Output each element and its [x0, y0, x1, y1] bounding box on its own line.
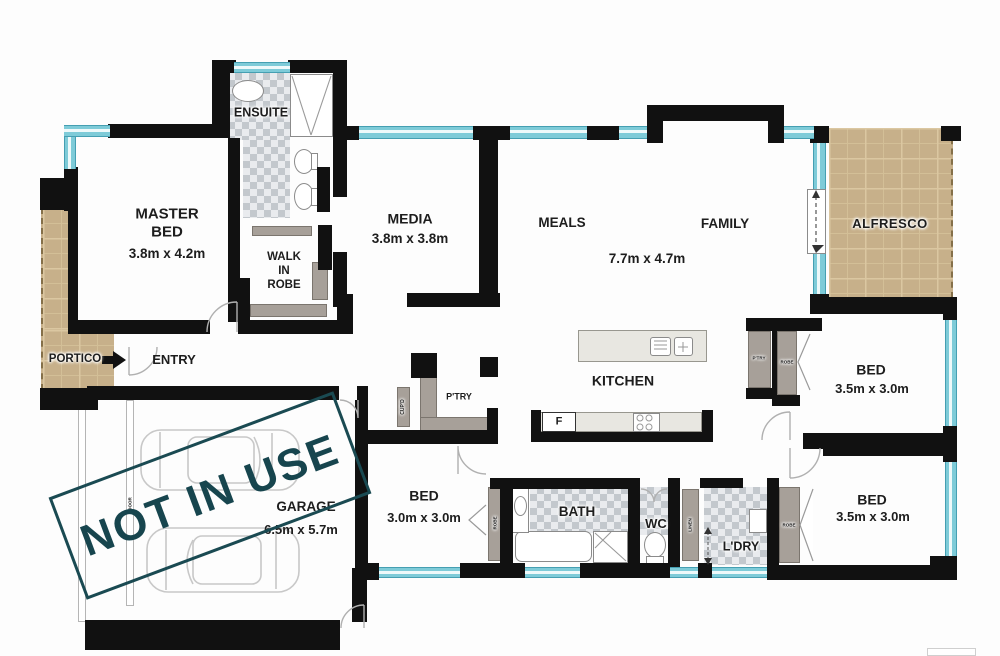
wall-segment — [333, 140, 347, 197]
master-bed-label: MASTER BED — [135, 206, 198, 243]
path — [790, 448, 820, 478]
wall-segment — [767, 565, 955, 580]
wall-segment — [357, 386, 368, 400]
window — [945, 320, 957, 426]
alfresco-label: ALFRESCO — [852, 216, 928, 232]
bathtub — [515, 531, 592, 562]
wall-segment — [700, 478, 743, 488]
bed2-label: BED — [856, 361, 886, 378]
wall-segment — [587, 126, 619, 140]
wall-segment — [367, 563, 379, 580]
portico-paving — [41, 208, 70, 334]
wall-segment — [473, 126, 510, 140]
bath-sink — [514, 496, 527, 516]
wir-shelf — [252, 226, 312, 236]
path — [469, 505, 486, 535]
wall-segment — [212, 60, 236, 73]
media-dims: 3.8m x 3.8m — [372, 231, 449, 247]
path — [762, 412, 790, 440]
path — [458, 446, 486, 474]
bath-shower — [593, 531, 628, 563]
window — [64, 137, 76, 169]
wall-segment — [810, 297, 957, 314]
family-label: FAMILY — [701, 216, 749, 232]
ensuite-shower — [290, 74, 333, 137]
floor-plan: ENSUITE MASTER BED 3.8m x 4.2m WALK IN R… — [0, 0, 1000, 656]
wall-segment — [647, 105, 784, 121]
window — [525, 567, 580, 578]
island-sink — [650, 337, 671, 356]
wall-segment — [238, 320, 337, 334]
wall-segment — [368, 430, 498, 444]
bed3-label: BED — [409, 487, 439, 504]
pantry-label: P'TRY — [446, 392, 472, 403]
window — [64, 125, 110, 137]
wall-segment — [317, 167, 330, 212]
ensuite-sink — [232, 80, 264, 102]
wall-segment — [746, 318, 822, 331]
wall-segment — [333, 126, 359, 140]
window — [359, 126, 473, 139]
cupboard-label: CUP'D — [400, 399, 406, 414]
laundry-label: L'DRY — [723, 539, 760, 554]
window — [813, 143, 826, 189]
portico-label: PORTICO — [49, 352, 101, 366]
ensuite-label: ENSUITE — [234, 105, 288, 120]
bed4-label: BED — [857, 491, 887, 508]
path — [798, 334, 810, 390]
master-bed-dims: 3.8m x 4.2m — [129, 246, 206, 262]
media-label: MEDIA — [387, 210, 432, 227]
path — [800, 489, 813, 561]
wall-segment — [943, 297, 957, 320]
bed2-dims: 3.5m x 3.0m — [835, 381, 909, 397]
wall-segment — [698, 563, 712, 578]
window — [619, 126, 647, 139]
wall-segment — [40, 388, 98, 410]
wall-segment — [64, 167, 78, 211]
bed4-dims: 3.5m x 3.0m — [836, 509, 910, 525]
wall-segment — [746, 388, 772, 399]
bed3-robe-label: ROBE — [492, 516, 497, 529]
laundry-trough — [749, 509, 767, 533]
wall-segment — [479, 140, 498, 307]
window — [670, 567, 698, 578]
bath-label: BATH — [559, 504, 596, 520]
wc-label: WC — [645, 516, 667, 532]
wall-segment — [823, 446, 947, 456]
wir-shelf — [250, 304, 327, 317]
wall-segment — [411, 353, 437, 378]
kitchen-label: KITCHEN — [592, 372, 654, 389]
linen-label: LINEN — [687, 518, 692, 532]
wall-segment — [352, 568, 367, 622]
window — [813, 254, 826, 294]
wall-segment — [487, 408, 498, 438]
wall-segment — [87, 386, 339, 400]
wall-segment — [772, 331, 777, 395]
sliding-door-panel — [807, 189, 826, 254]
wall-segment — [772, 395, 800, 406]
wall-segment — [333, 252, 347, 307]
wall-segment — [68, 208, 78, 324]
wall-segment — [767, 478, 779, 566]
window — [379, 567, 460, 578]
window — [712, 567, 767, 578]
wall-segment — [85, 620, 340, 650]
window — [510, 126, 587, 139]
ensuite-tiles — [243, 140, 290, 218]
window — [784, 126, 814, 139]
bed2-pantry-label: P'TRY — [753, 355, 766, 360]
wall-segment — [531, 432, 713, 442]
not-in-use-stamp: NOT IN USE — [49, 391, 372, 600]
bed3-dims: 3.0m x 3.0m — [387, 510, 461, 526]
bed2-robe-label: ROBE — [780, 359, 793, 364]
cooktop — [633, 413, 660, 432]
wall-segment — [460, 563, 525, 578]
wall-segment — [943, 442, 957, 462]
wall-segment — [702, 410, 713, 442]
window — [945, 462, 957, 556]
wall-segment — [580, 563, 628, 578]
wall-segment — [68, 320, 210, 334]
meals-label: MEALS — [538, 215, 585, 231]
edge-artifact — [927, 648, 976, 656]
fridge-label: F — [556, 415, 563, 428]
wall-segment — [108, 124, 214, 138]
wc-toilet — [644, 532, 666, 558]
window — [234, 62, 290, 73]
wall-segment — [647, 105, 663, 143]
wall-segment — [480, 357, 498, 377]
bed4-robe-label: ROBE — [782, 522, 795, 527]
alfresco-paving — [829, 128, 953, 298]
island-sink — [674, 337, 693, 356]
entry-label: ENTRY — [152, 352, 196, 368]
walk-in-robe-label: WALK IN ROBE — [267, 250, 301, 292]
wall-segment — [768, 105, 784, 143]
living-dims: 7.7m x 4.7m — [609, 251, 686, 267]
wall-segment — [318, 225, 332, 270]
wall-segment — [941, 126, 961, 141]
not-in-use-text: NOT IN USE — [74, 424, 346, 566]
